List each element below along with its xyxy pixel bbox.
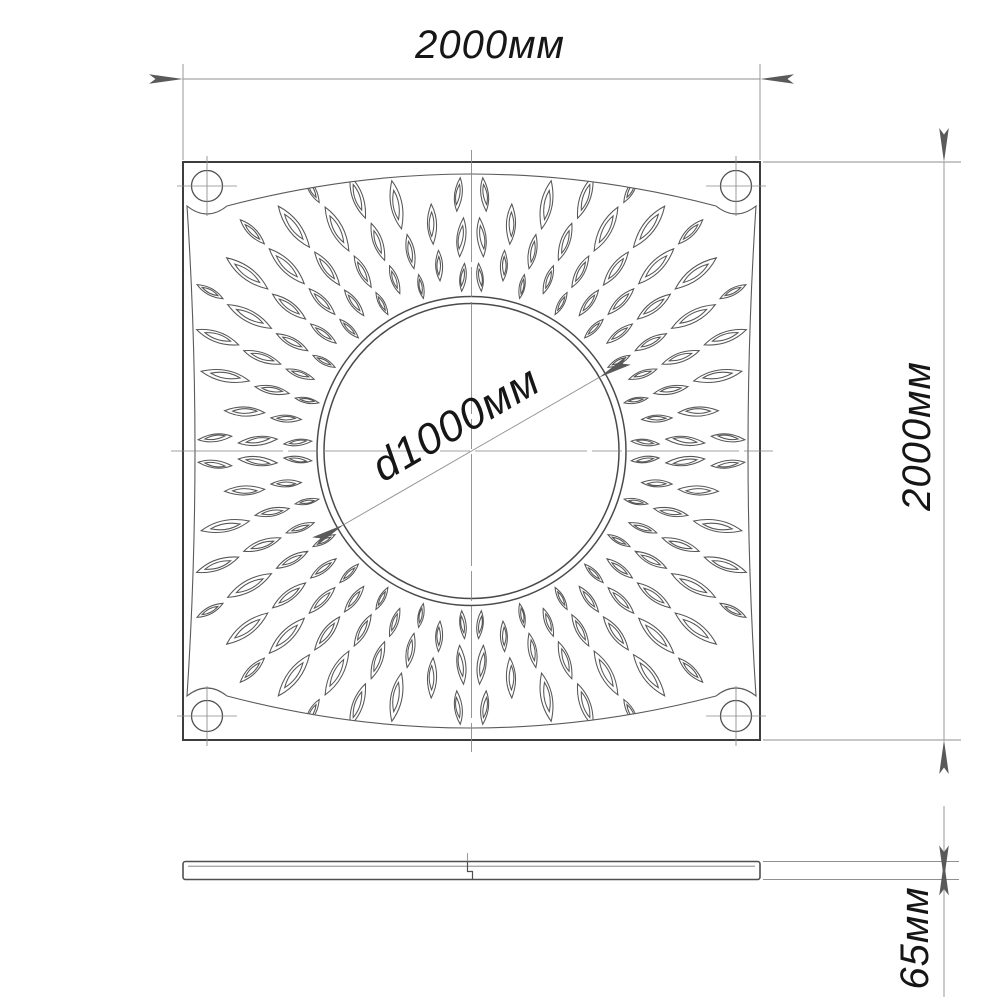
dim-width-label: 2000мм: [414, 23, 565, 67]
plate-outline: [183, 862, 760, 880]
top-dimension: 2000мм: [183, 23, 760, 160]
thickness-dimension: 65мм: [763, 806, 959, 997]
arrowhead-3: [939, 740, 949, 774]
arrowhead-1: [760, 74, 794, 84]
arrowhead-0: [149, 74, 183, 84]
technical-drawing: 2000мм 2000мм d1000мм 65мм: [0, 0, 1000, 1000]
arrowhead-2: [939, 128, 949, 162]
dim-diameter-label: d1000мм: [364, 356, 548, 491]
plate-center-joint: [468, 862, 473, 880]
side-view: [183, 853, 760, 880]
right-dimension: 2000мм: [763, 162, 961, 740]
drawing-canvas: 2000мм 2000мм d1000мм 65мм: [0, 0, 1000, 1000]
dim-height-label: 2000мм: [895, 361, 939, 512]
dim-thickness-label: 65мм: [893, 886, 937, 989]
